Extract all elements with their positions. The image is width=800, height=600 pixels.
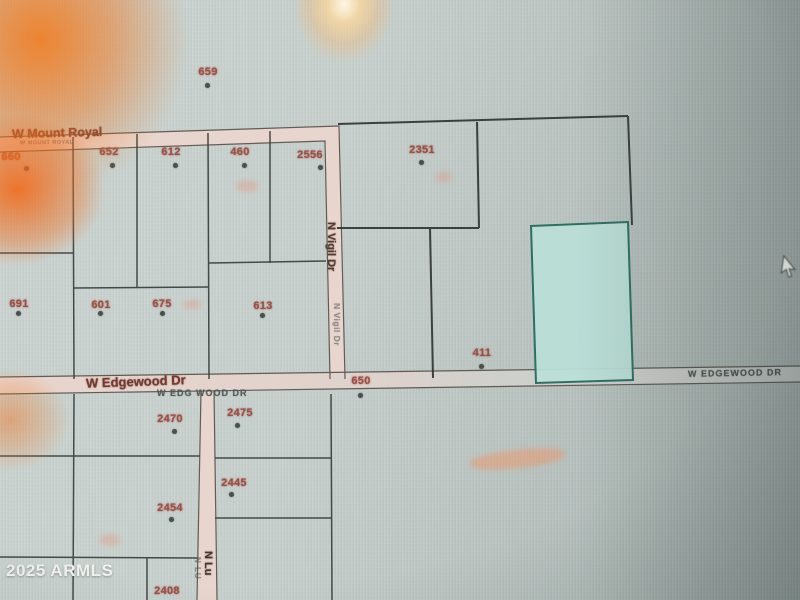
street-label-vigil: N Vigil Dr	[325, 222, 337, 271]
parcel-number: 612	[161, 146, 180, 158]
parcel-number: 2556	[297, 149, 323, 161]
parcel-dot	[205, 83, 210, 88]
parcel-number: 2454	[157, 502, 183, 514]
parcel-dot	[419, 160, 424, 165]
parcel-lines	[0, 131, 332, 600]
parcel-number: 2445	[221, 477, 247, 489]
highlighted-parcel[interactable]	[531, 222, 633, 383]
parcel-number: 2475	[227, 407, 253, 419]
parcel-number: 411	[473, 347, 492, 359]
parcel-number: 601	[91, 299, 110, 311]
parcel-dot	[229, 492, 234, 497]
parcel-number: 2470	[157, 413, 183, 425]
parcel-dot	[98, 311, 103, 316]
parcel-number: 650	[351, 375, 370, 387]
parcel-dot	[24, 166, 29, 171]
glare-smudge	[100, 534, 120, 546]
parcel-number: 691	[9, 298, 28, 310]
street-label-vigil-ghost: N Vigil Dr	[332, 303, 342, 346]
parcel-dot	[358, 393, 363, 398]
parcel-number: 675	[152, 298, 171, 310]
parcel-number: 2351	[409, 144, 435, 156]
parcel-number: 2408	[154, 585, 180, 597]
parcel-number: 613	[253, 300, 272, 312]
street-label-n-lu-ghost: N LU	[193, 557, 202, 580]
parcel-dot	[110, 163, 115, 168]
parcel-dot	[169, 517, 174, 522]
parcel-number: 460	[230, 146, 249, 158]
parcel-dot	[479, 364, 484, 369]
glare-smudge	[236, 180, 258, 192]
street-label-mount-royal: W Mount Royal	[12, 125, 103, 141]
street-label-n-lu: N Lu	[202, 551, 214, 575]
parcel-dot	[235, 423, 240, 428]
map-viewport[interactable]: W Mount Royal W MOUNT ROYAL N Vigil Dr N…	[0, 0, 800, 600]
parcel-dot	[160, 311, 165, 316]
parcel-dot	[172, 429, 177, 434]
parcel-dot	[16, 311, 21, 316]
parcel-number: 652	[99, 146, 118, 158]
parcel-number: 659	[198, 66, 217, 78]
street-label-edgewood-caps-right: W EDGEWOOD DR	[688, 367, 782, 379]
parcel-dot	[242, 163, 247, 168]
parcel-map	[0, 0, 800, 600]
parcel-dot	[173, 163, 178, 168]
street-label-mount-royal-caps: W MOUNT ROYAL	[20, 140, 74, 147]
parcel-dot	[260, 313, 265, 318]
road-edges	[0, 126, 800, 600]
armls-watermark: 2025 ARMLS	[6, 561, 113, 581]
street-label-edgewood-caps-left: W EDG WOOD DR	[157, 388, 248, 398]
parcel-number: 660	[1, 151, 20, 163]
parcel-dot	[318, 165, 323, 170]
glare-smudge	[436, 172, 452, 182]
glare-smudge	[183, 300, 201, 309]
mouse-cursor-icon	[780, 255, 799, 279]
